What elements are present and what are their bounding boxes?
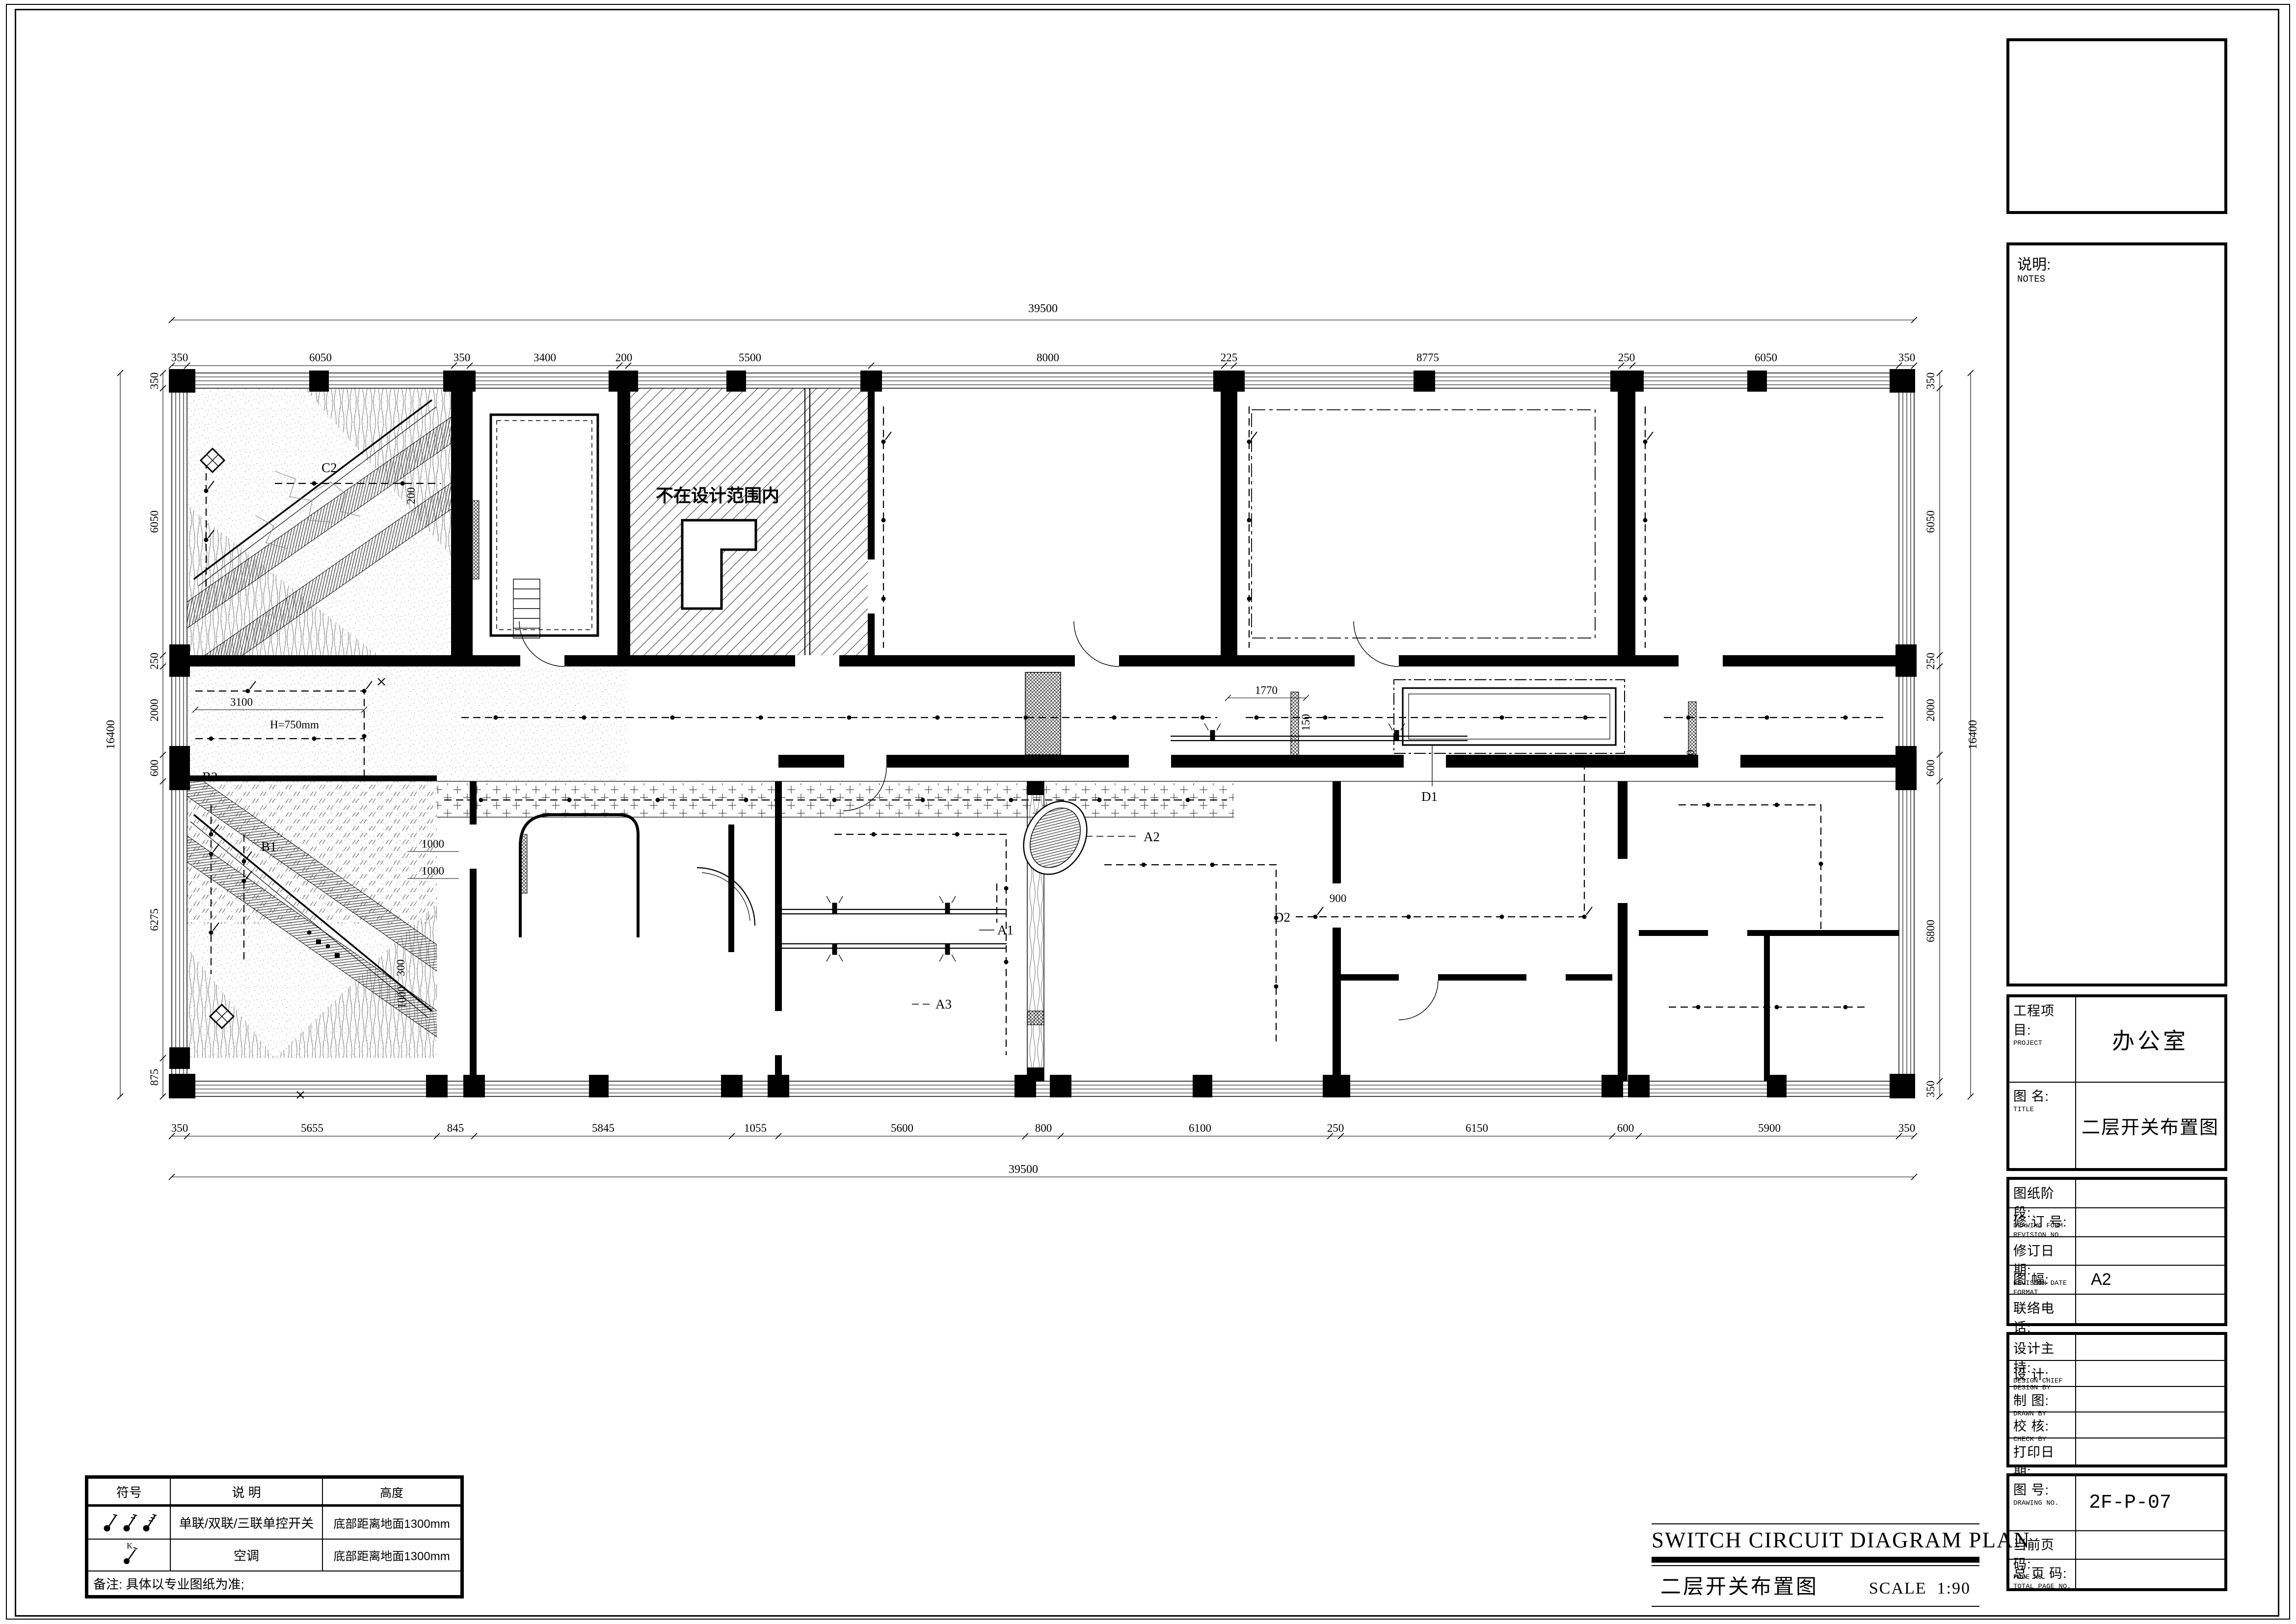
dim-label: 1770 — [1255, 684, 1278, 696]
project-label-cn: 工程项目: — [2013, 1000, 2071, 1038]
room-label-b1: B1 — [261, 839, 277, 854]
ac-switch-icon: K — [112, 1541, 146, 1566]
dim-label: 1000 — [396, 986, 408, 1009]
dim-label: 250 — [1618, 351, 1635, 364]
design-chief-value — [2076, 1335, 2224, 1360]
ac-switch-k-label: K — [127, 1541, 133, 1550]
revision-format-box: 图纸阶段:DRAWING FORM 修 订 号:REVISION NO. 修订日… — [2006, 1177, 2227, 1326]
print-date-value — [2076, 1438, 2224, 1464]
room-label-a3: A3 — [935, 997, 952, 1012]
dim-label: 150 — [1684, 750, 1697, 767]
title-underline-thin — [1652, 1565, 1979, 1566]
dim-label: 6050 — [309, 351, 332, 364]
legend-row-ac: K 空调 底部距离地面1300mm — [88, 1539, 461, 1571]
dim-label: 350 — [1898, 351, 1916, 364]
hatch-wall-strips — [1025, 672, 1696, 756]
title-label-cn: 图 名: — [2013, 1086, 2071, 1105]
format-value: A2 — [2076, 1266, 2224, 1293]
notes-label-cn: 说明: — [2017, 252, 2216, 274]
dim-label: 350 — [148, 373, 160, 390]
legend-header-height: 高度 — [322, 1478, 461, 1506]
title-label-en: TITLE — [2013, 1106, 2071, 1114]
room-label-d2: D2 — [1274, 910, 1290, 925]
drawing-title-value: 二层开关布置图 — [2076, 1083, 2224, 1168]
legend-header-row: 符号 说 明 高度 — [88, 1478, 461, 1506]
total-page-label-cn: 总 页 码: — [2013, 1563, 2071, 1582]
dim-label: 250 — [1327, 1122, 1344, 1134]
dim-label: 350 — [1924, 373, 1937, 390]
notes-box: 说明: NOTES — [2006, 242, 2227, 986]
dim-overall-top: 39500 — [1028, 302, 1058, 315]
format-label-cn: 图 幅: — [2013, 1269, 2071, 1288]
dim-label: 2000 — [1924, 699, 1937, 721]
door-arcs — [519, 621, 1438, 1020]
dim-label: 300 — [395, 959, 407, 977]
title-underline-bar — [1652, 1557, 1979, 1563]
legend-ac-height: 底部距离地面1300mm — [322, 1539, 461, 1571]
scale-text: SCALE 1:90 — [1869, 1579, 1971, 1598]
project-value: 办公室 — [2076, 997, 2224, 1082]
dim-label: 250 — [148, 653, 160, 670]
legend-switch-desc: 单联/双联/三联单控开关 — [170, 1506, 322, 1540]
total-page-value — [2076, 1560, 2224, 1588]
dim-label: 250 — [1924, 653, 1937, 670]
dim-label: 600 — [1924, 760, 1937, 777]
plan-title-en: SWITCH CIRCUIT DIAGRAM PLAN — [1652, 1527, 1979, 1553]
dim-label: 5900 — [1758, 1122, 1781, 1134]
room-label-a2: A2 — [1144, 829, 1160, 844]
dim-label: 6800 — [1924, 920, 1937, 942]
dim-label: 600 — [1617, 1122, 1634, 1134]
dim-label: 900 — [1330, 892, 1347, 905]
legend-switch-height: 底部距离地面1300mm — [322, 1506, 461, 1540]
curved-wall-room — [520, 815, 755, 937]
drawn-by-value — [2076, 1387, 2224, 1412]
stair-shaft — [472, 415, 598, 638]
dim-label: 6050 — [1924, 510, 1937, 533]
legend-note: 备注: 具体以专业图纸为准; — [88, 1571, 461, 1596]
pantry-counter — [1394, 680, 1625, 786]
title-block-logo-box — [2006, 38, 2227, 214]
dim-label: 800 — [1035, 1122, 1052, 1134]
total-page-label-en: TOTAL PAGE NO. — [2013, 1583, 2071, 1591]
scale-value: 1:90 — [1937, 1579, 1971, 1597]
dim-overall-right: 16400 — [1967, 720, 1979, 749]
drawn-by-label-cn: 制 图: — [2013, 1390, 2071, 1409]
plan-title-cn: 二层开关布置图 — [1660, 1570, 1818, 1600]
dim-label: 6150 — [1466, 1122, 1488, 1134]
dim-label: 225 — [1221, 351, 1238, 364]
revision-no-value — [2076, 1208, 2224, 1236]
dim-label: 5500 — [739, 351, 761, 364]
drawing-sheet: C2 不在设计范围内 — [0, 0, 2296, 1624]
page-no-value — [2076, 1531, 2224, 1559]
project-label-en: PROJECT — [2013, 1039, 2071, 1047]
dim-label: 875 — [148, 1069, 160, 1086]
room-label-a1: A1 — [997, 923, 1014, 937]
floor-plan: C2 不在设计范围内 — [0, 0, 2296, 1624]
design-by-value — [2076, 1361, 2224, 1386]
contact-value — [2076, 1295, 2224, 1323]
dim-label: 2000 — [148, 699, 160, 721]
dim-label: 350 — [1924, 1081, 1937, 1098]
contact-label-cn: 联络电话: — [2013, 1298, 2071, 1336]
dim-label: 1055 — [744, 1122, 767, 1134]
dim-label: 3400 — [534, 351, 556, 364]
project-row: 工程项目: PROJECT 办公室 — [2009, 997, 2224, 1083]
dim-label: 6050 — [148, 510, 160, 533]
out-of-scope-label: 不在设计范围内 — [656, 485, 779, 506]
dim-label: 845 — [447, 1122, 464, 1134]
legend-note-row: 备注: 具体以专业图纸为准; — [88, 1571, 461, 1596]
dim-label: 350 — [1898, 1122, 1916, 1134]
project-title-box: 工程项目: PROJECT 办公室 图 名: TITLE 二层开关布置图 — [2006, 994, 2227, 1171]
room-label-c2: C2 — [321, 460, 337, 475]
drawing-form-value — [2076, 1180, 2224, 1207]
drawing-no-value: 2F-P-07 — [2076, 1476, 2224, 1530]
drawing-number-box: 图 号:DRAWING NO.2F-P-07 当前页码:PAGE NO. 总 页… — [2006, 1473, 2227, 1591]
dim-overall-bottom: 39500 — [1009, 1163, 1038, 1176]
dim-label: 1000 — [422, 865, 444, 877]
design-credits-box: 设计主持:DESIGN CHIEF 设 计:DESIGN BY 制 图:DRAW… — [2006, 1332, 2227, 1467]
legend-ac-desc: 空调 — [170, 1539, 322, 1571]
dim-label: 350 — [171, 351, 188, 364]
dim-label: 200 — [615, 351, 633, 364]
dim-label: 350 — [454, 351, 471, 364]
plan-leader-labels — [912, 836, 1140, 1004]
dim-label: 1000 — [422, 838, 444, 850]
legend-table: 符号 说 明 高度 单联/双联/三联单控开关 底部距离地面1300mm — [85, 1475, 464, 1598]
dim-label: 5655 — [301, 1122, 323, 1134]
legend-header-desc: 说 明 — [170, 1478, 322, 1506]
revision-date-value — [2076, 1237, 2224, 1265]
design-by-label-cn: 设 计: — [2013, 1364, 2071, 1383]
dim-label: 3100 — [230, 696, 253, 708]
check-by-value — [2076, 1412, 2224, 1438]
notes-label-en: NOTES — [2017, 274, 2216, 285]
revision-no-label-cn: 修 订 号: — [2013, 1211, 2071, 1230]
dim-label: 6050 — [1755, 351, 1777, 364]
dim-label: 5600 — [891, 1122, 913, 1134]
dim-label: 8000 — [1037, 351, 1059, 364]
switch-symbols-icon — [95, 1508, 163, 1534]
drawing-no-label-cn: 图 号: — [2013, 1479, 2071, 1498]
dim-label: 350 — [171, 1122, 188, 1134]
dim-label: H=750mm — [270, 719, 319, 731]
dim-overall-left: 16400 — [105, 720, 117, 749]
scale-label: SCALE — [1869, 1579, 1927, 1597]
dim-label: 200 — [405, 487, 417, 505]
legend-row-switch: 单联/双联/三联单控开关 底部距离地面1300mm — [88, 1506, 461, 1540]
room-label-d1: D1 — [1421, 789, 1438, 804]
dim-label: 6100 — [1189, 1122, 1211, 1134]
check-by-label-cn: 校 核: — [2013, 1415, 2071, 1435]
dim-label: 6275 — [148, 908, 160, 931]
dim-label: 8775 — [1416, 351, 1439, 364]
drawing-title-row: 图 名: TITLE 二层开关布置图 — [2009, 1083, 2224, 1168]
dim-label: 150 — [1300, 714, 1312, 731]
plan-title-block: SWITCH CIRCUIT DIAGRAM PLAN 二层开关布置图 SCAL… — [1652, 1523, 1979, 1607]
dim-label: 5845 — [592, 1122, 614, 1134]
dim-label: 600 — [148, 760, 160, 777]
legend-header-symbol: 符号 — [88, 1478, 170, 1506]
ceiling-outline — [1252, 410, 1595, 638]
drawing-no-label-en: DRAWING NO. — [2013, 1499, 2071, 1507]
